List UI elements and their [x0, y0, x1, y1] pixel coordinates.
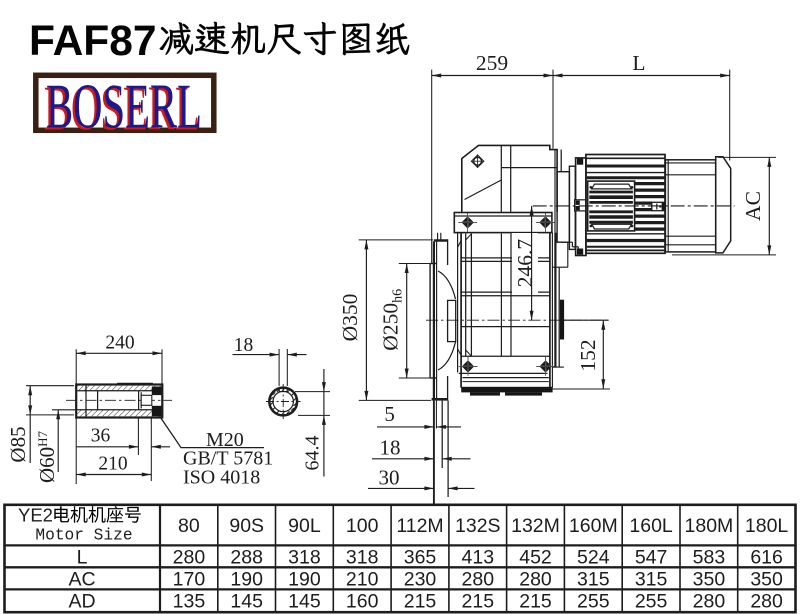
svg-text:90L: 90L	[288, 515, 321, 537]
svg-text:AC: AC	[741, 191, 765, 221]
svg-text:616: 616	[750, 546, 783, 568]
svg-text:170: 170	[173, 568, 206, 590]
svg-text:AC: AC	[68, 568, 95, 590]
svg-text:280: 280	[750, 591, 783, 613]
svg-text:547: 547	[635, 546, 668, 568]
svg-text:90S: 90S	[229, 515, 264, 537]
svg-text:280: 280	[519, 568, 552, 590]
svg-text:365: 365	[404, 546, 437, 568]
svg-text:L: L	[77, 546, 88, 568]
svg-text:18: 18	[234, 335, 254, 356]
svg-text:152: 152	[576, 339, 600, 371]
svg-text:FAF87: FAF87	[29, 18, 157, 65]
svg-text:280: 280	[462, 568, 495, 590]
svg-text:135: 135	[173, 591, 206, 613]
svg-text:280: 280	[693, 591, 726, 613]
svg-text:100: 100	[346, 515, 379, 537]
svg-text:452: 452	[519, 546, 552, 568]
svg-text:160L: 160L	[629, 515, 673, 537]
svg-text:255: 255	[577, 591, 610, 613]
svg-text:180M: 180M	[685, 515, 734, 537]
svg-text:350: 350	[693, 568, 726, 590]
svg-text:Motor Size: Motor Size	[35, 527, 132, 545]
svg-text:30: 30	[379, 466, 400, 490]
svg-text:64.4: 64.4	[302, 436, 324, 471]
svg-text:315: 315	[577, 568, 610, 590]
svg-text:413: 413	[462, 546, 495, 568]
svg-text:215: 215	[462, 591, 495, 613]
svg-text:L: L	[632, 51, 645, 75]
svg-text:215: 215	[404, 591, 437, 613]
svg-text:Ø350: Ø350	[338, 294, 362, 342]
svg-text:AD: AD	[68, 591, 95, 613]
svg-text:YE2: YE2	[18, 504, 53, 525]
svg-text:18: 18	[380, 436, 401, 460]
svg-text:112M: 112M	[396, 515, 443, 537]
svg-text:160M: 160M	[569, 515, 618, 537]
svg-text:255: 255	[635, 591, 668, 613]
svg-text:5: 5	[384, 402, 395, 426]
svg-text:180L: 180L	[745, 515, 789, 537]
svg-text:ISO 4018: ISO 4018	[183, 467, 260, 489]
svg-text:190: 190	[288, 568, 321, 590]
svg-text:230: 230	[404, 568, 437, 590]
svg-text:BOSERL: BOSERL	[46, 71, 202, 142]
svg-text:132S: 132S	[455, 515, 501, 537]
svg-text:259: 259	[476, 51, 508, 75]
svg-text:288: 288	[230, 546, 263, 568]
svg-text:Ø85: Ø85	[6, 426, 30, 462]
svg-text:280: 280	[173, 546, 206, 568]
svg-text:145: 145	[230, 591, 263, 613]
svg-text:583: 583	[693, 546, 726, 568]
svg-text:318: 318	[346, 546, 379, 568]
svg-text:318: 318	[288, 546, 321, 568]
svg-text:246.7: 246.7	[513, 239, 537, 288]
svg-text:160: 160	[346, 591, 379, 613]
svg-text:350: 350	[750, 568, 783, 590]
svg-text:215: 215	[519, 591, 552, 613]
svg-text:36: 36	[91, 426, 111, 447]
svg-text:145: 145	[288, 591, 321, 613]
svg-text:190: 190	[230, 568, 263, 590]
svg-text:132M: 132M	[511, 515, 560, 537]
svg-text:240: 240	[105, 333, 134, 354]
svg-text:80: 80	[178, 515, 200, 537]
svg-text:315: 315	[635, 568, 668, 590]
svg-text:524: 524	[577, 546, 610, 568]
svg-text:210: 210	[346, 568, 379, 590]
svg-text:210: 210	[98, 454, 127, 475]
